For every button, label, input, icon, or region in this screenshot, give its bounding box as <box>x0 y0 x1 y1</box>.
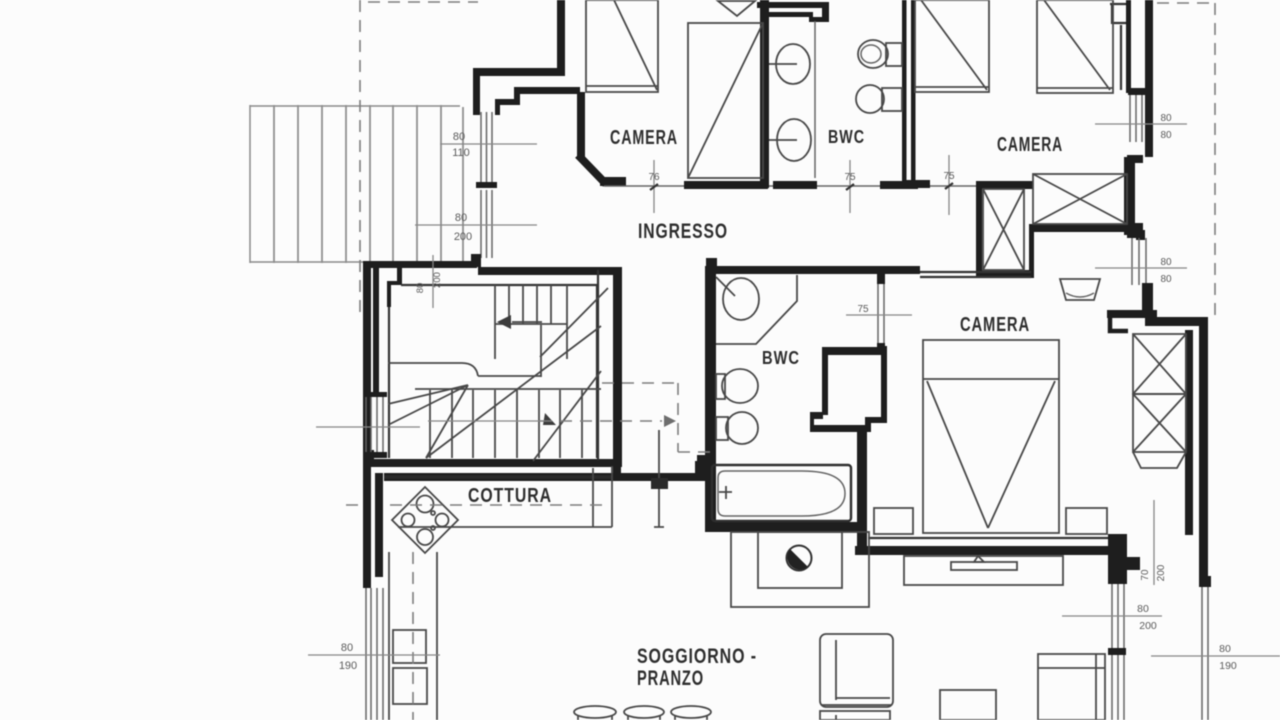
svg-text:CAMERA: CAMERA <box>997 134 1063 156</box>
svg-text:110: 110 <box>452 147 470 159</box>
svg-text:80: 80 <box>1160 130 1172 141</box>
svg-text:SOGGIORNO -: SOGGIORNO - <box>637 645 757 668</box>
svg-text:CAMERA: CAMERA <box>960 314 1030 336</box>
svg-text:70: 70 <box>1140 569 1151 581</box>
svg-text:BWC: BWC <box>762 348 800 368</box>
svg-text:75: 75 <box>844 172 856 183</box>
svg-text:COTTURA: COTTURA <box>468 485 552 507</box>
svg-text:80: 80 <box>453 131 465 143</box>
svg-text:80: 80 <box>1219 643 1231 655</box>
svg-text:76: 76 <box>648 172 660 183</box>
svg-text:80: 80 <box>1160 257 1172 268</box>
svg-text:75: 75 <box>943 171 955 182</box>
svg-text:INGRESSO: INGRESSO <box>638 220 728 243</box>
svg-text:80: 80 <box>341 642 353 654</box>
svg-text:200: 200 <box>1156 564 1167 581</box>
svg-text:BWC: BWC <box>828 127 865 147</box>
svg-text:75: 75 <box>857 304 869 315</box>
svg-text:80: 80 <box>415 283 426 294</box>
svg-text:190: 190 <box>339 660 357 672</box>
svg-text:200: 200 <box>1139 620 1157 632</box>
svg-text:PRANZO: PRANZO <box>637 667 704 690</box>
svg-text:80: 80 <box>1160 274 1172 285</box>
svg-text:80: 80 <box>1137 603 1149 615</box>
svg-text:190: 190 <box>1219 660 1237 672</box>
svg-text:200: 200 <box>454 231 472 243</box>
svg-text:CAMERA: CAMERA <box>610 127 678 149</box>
svg-text:80: 80 <box>455 212 467 224</box>
svg-text:200: 200 <box>432 272 443 288</box>
svg-text:80: 80 <box>1160 113 1172 124</box>
